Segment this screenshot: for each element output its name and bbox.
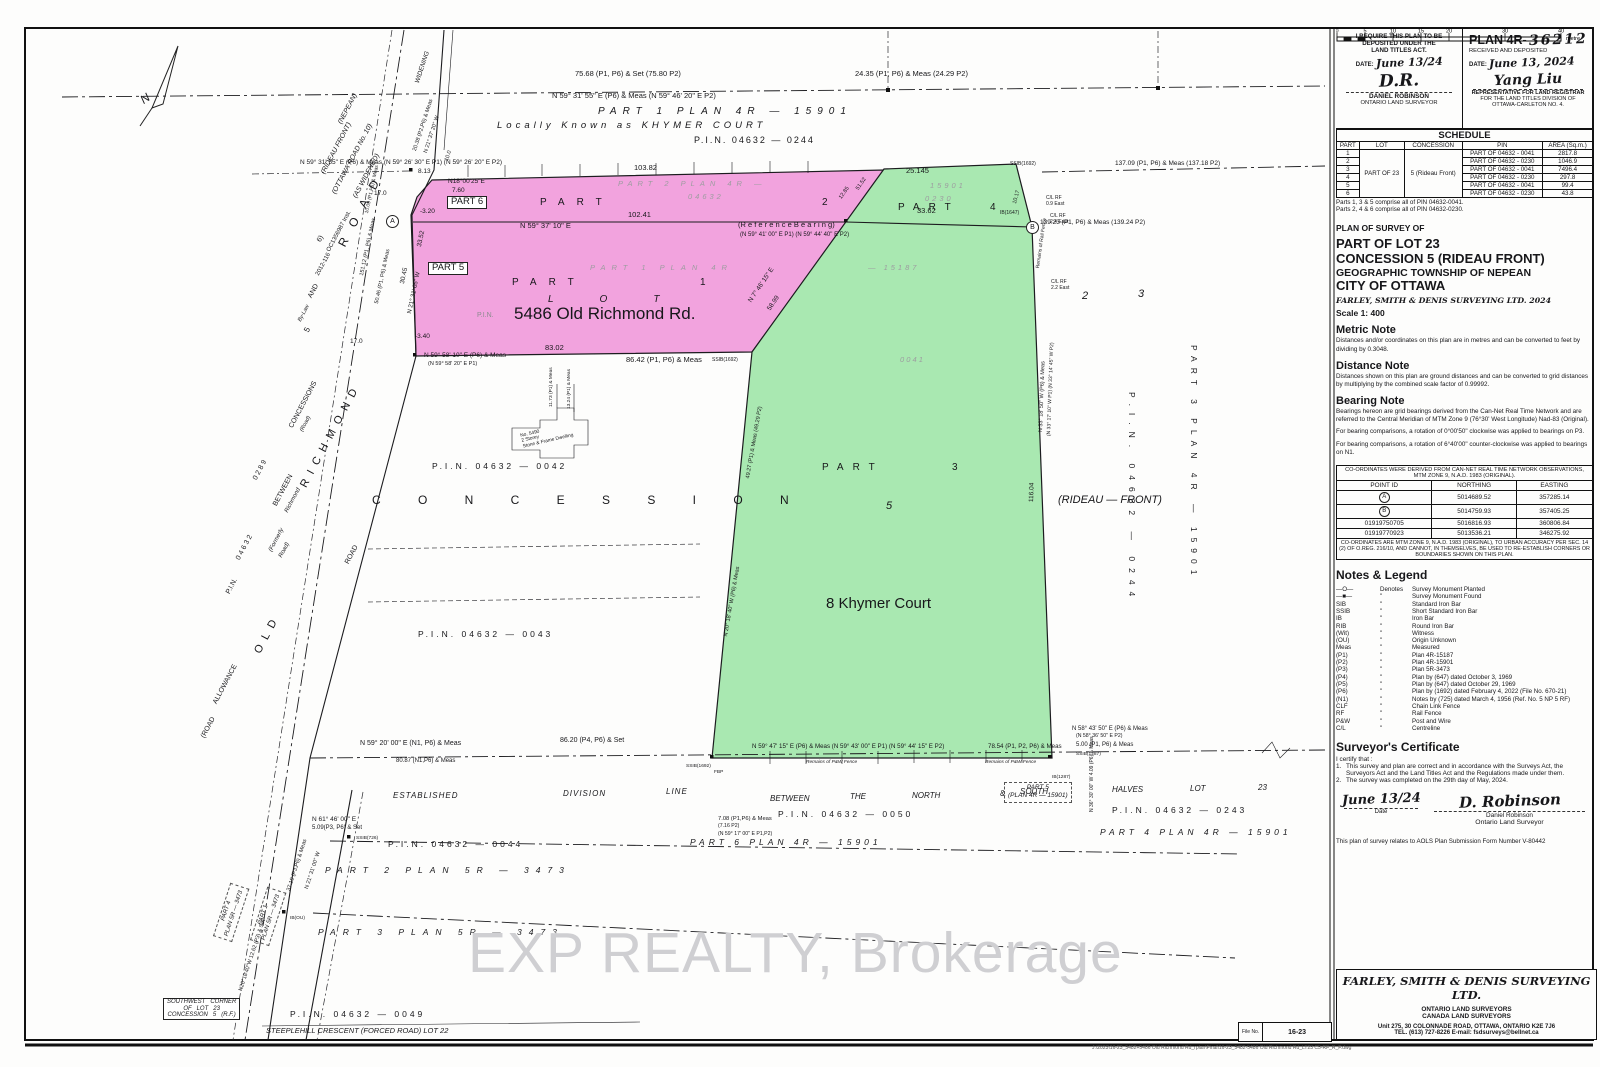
legend-list: —O—DenotesSurvey Monument Planted—■—"Sur… [1336, 586, 1593, 732]
map-label: 0230 [925, 195, 954, 203]
schedule-col-lot: LOT [1359, 142, 1404, 150]
survey-title-lot: PART OF LOT 23 [1336, 237, 1593, 252]
map-label: BETWEEN [770, 795, 810, 804]
svg-text:5: 5 [1363, 29, 1366, 35]
survey-firm-line: FARLEY, SMITH & DENIS SURVEYING LTD. 202… [1336, 296, 1593, 305]
map-label: PART 3 PLAN 4R — 15901 [1188, 345, 1198, 580]
map-label: IB(OU) [290, 916, 305, 921]
schedule-col-pin: PIN [1462, 142, 1543, 150]
map-label: 5.09(P3, P6) & Set [312, 825, 362, 832]
legend-item: CLF"Chain Link Fence [1336, 703, 1593, 710]
coords-row: 019197709235013536.21346275.92 [1337, 528, 1593, 538]
legend-item: (N1)"Notes by (725) dated March 4, 1956 … [1336, 696, 1593, 703]
map-label: 86.20 (P4, P6) & Set [560, 737, 624, 745]
schedule-col-area: AREA (Sq.m.) [1543, 142, 1593, 150]
survey-plan-sheet: N75.68 (P1, P6) & Set (75.80 P2)24.35 (P… [0, 0, 1600, 1067]
legend-item: SIB"Standard Iron Bar [1336, 601, 1593, 608]
map-label: PART 1 PLAN 4R [590, 264, 733, 272]
map-label: P.I.N. [477, 312, 494, 320]
title-block-panel: I REQUIRE THIS PLAN TO BE DEPOSITED UNDE… [1336, 28, 1593, 1040]
point-a: A [386, 215, 399, 228]
legend-item: (P6)"Plan by (1692) dated February 4, 20… [1336, 688, 1593, 695]
legend-item: IB"Iron Bar [1336, 615, 1593, 622]
map-label: THE [850, 793, 866, 802]
legend-item: (P5)"Plan by (647) dated October 29, 196… [1336, 681, 1593, 688]
certificate-title: Surveyor's Certificate [1336, 740, 1593, 754]
map-label: 116.04 [1028, 483, 1036, 503]
map-label: Remains of P&W Fence [806, 760, 857, 765]
coords-row: 019197507055016816.93360806.84 [1337, 518, 1593, 528]
point-b: B [1026, 221, 1039, 234]
map-label: PART 1 PLAN 4R — 15901 [598, 106, 852, 117]
map-label: 103.82 [634, 164, 657, 172]
svg-text:0: 0 [1336, 29, 1339, 35]
schedule-note1: Parts 1, 3 & 5 comprise all of PIN 04632… [1336, 199, 1593, 206]
schedule-row: 1PART OF 235 (Rideau Front)PART OF 04632… [1337, 150, 1593, 158]
legend-item: RF"Rail Fence [1336, 710, 1593, 717]
map-label: C/L RF 0.9 East [1046, 196, 1064, 207]
map-label: P.I.N. 04632 — 0244 [1126, 392, 1136, 603]
map-label: 102.41 [628, 211, 651, 219]
map-label: P.I.N. 04632 — 0043 [418, 630, 553, 640]
part5-label: PART 5 [428, 262, 468, 275]
steeplehill-label: STEEPLEHILL CRESCENT (FORCED ROAD) LOT 2… [266, 1027, 448, 1035]
map-label: (R e f e r e n c e B e a r i n g) [738, 221, 835, 229]
map-label: 8.13 [418, 168, 431, 175]
scale-label: Scale 1: 400 [1336, 308, 1593, 318]
map-label: C O N C E S S I O N [372, 494, 806, 507]
map-label: 7.08 (P1,P6) & Meas [718, 816, 772, 822]
registrar-date-value: June 13, 2024 [1489, 55, 1575, 71]
bearing-note-p3: For bearing comparisons, a rotation of 0… [1336, 428, 1593, 436]
map-label: IB(1647) [1000, 211, 1019, 217]
legend-item: (Wit)"Witness [1336, 630, 1593, 637]
map-label: 7.60 [452, 187, 465, 194]
legend-item: Meas"Measured [1336, 644, 1593, 651]
map-label: C/L RF 2.4 East [1050, 214, 1068, 225]
southwest-corner-note: SOUTHWEST CORNER OF LOT 23 CONCESSION 5 … [163, 998, 240, 1020]
file-number-label: File No. [1239, 1023, 1263, 1041]
scale-bar: 051015203040metres [1336, 28, 1580, 46]
bearing-note-body: Bearings hereon are grid bearings derive… [1336, 408, 1593, 424]
map-label: LINE [666, 788, 688, 797]
svg-text:15: 15 [1418, 29, 1424, 35]
certificate-surveyor-role: Ontario Land Surveyor [1426, 819, 1593, 826]
map-label: -3.20 [420, 208, 435, 215]
surveying-firm-box: FARLEY, SMITH & DENIS SURVEYING LTD. ONT… [1336, 969, 1597, 1040]
surveyor-name: DANIEL ROBINSON [1338, 93, 1460, 100]
map-label: P.I.N. 04632 — 0044 [388, 840, 523, 850]
map-label: N18°00'25"E [448, 178, 485, 185]
svg-text:20: 20 [1446, 29, 1452, 35]
legend-item: RIB"Round Iron Bar [1336, 623, 1593, 630]
map-label: Remains of P&W Fence [985, 760, 1036, 765]
part6-label: PART 6 [447, 196, 487, 209]
svg-text:40: 40 [1558, 29, 1564, 35]
schedule-title: SCHEDULE [1336, 129, 1593, 141]
map-label: 4 [990, 202, 996, 213]
map-label: N 58° 43' 50" E (P6) & Meas [1072, 726, 1148, 733]
deposit-date-value: June 13/24 [1375, 55, 1442, 70]
map-label: 33.62 [917, 207, 936, 215]
file-number-value: 16-23 [1263, 1029, 1331, 1036]
map-label: HALVES [1112, 786, 1143, 795]
khymer-court-label: Locally Known as KHYMER COURT [497, 121, 766, 132]
map-label: 80.87 (N1,P6) & Meas [396, 758, 455, 765]
map-label: PART [512, 277, 586, 288]
watermark: EXP REALTY, Brokerage [468, 922, 1123, 986]
map-label: PART 6 PLAN 4R — 15901 [690, 838, 882, 848]
survey-title-concession: CONCESSION 5 (RIDEAU FRONT) [1336, 252, 1593, 267]
firm-tel: TEL. (613) 727-8226 E-mail: fsdsurveys@b… [1339, 1030, 1594, 1036]
map-label: P.I.N. 04632 — 0244 [694, 135, 815, 145]
schedule-table: PART LOT CONCESSION PIN AREA (Sq.m.) 1PA… [1336, 141, 1593, 198]
survey-title-kicker: PLAN OF SURVEY OF [1336, 223, 1593, 233]
survey-title-city: CITY OF OTTAWA [1336, 279, 1593, 294]
bearing-note-n1: For bearing comparisons, a rotation of 6… [1336, 441, 1593, 457]
map-label: 11.73 (P1) & Meas [549, 367, 554, 407]
map-label: 78.54 (P1, P2, P6) & Meas [988, 744, 1062, 751]
certificate-date-value: June 13/24 [1341, 791, 1420, 809]
map-label: SSIB(1692) [686, 764, 711, 769]
map-label: C/L RF 2.2 East [1051, 280, 1069, 291]
legend-item: (OU)"Origin Unknown [1336, 637, 1593, 644]
map-label: IB(1287) [1052, 775, 1070, 780]
surveyor-signature: D.R. [1379, 70, 1420, 91]
map-label: (7.16 P2) [718, 824, 739, 830]
map-label: N 59° 20' 00" E (N1, P6) & Meas [360, 740, 461, 748]
map-label: P.I.N. 04632 — 0243 [1112, 806, 1247, 816]
map-label: PART [540, 197, 614, 208]
map-label: (RIDEAU — FRONT) [1058, 494, 1162, 506]
map-label: -3.40 [415, 333, 430, 340]
map-label: P.I.N. 04632 — 0049 [290, 1010, 425, 1020]
map-label: N 61° 46' 00" E [312, 816, 356, 823]
map-label: DIVISION [563, 790, 606, 799]
map-label: 0 0 4 1 [900, 356, 923, 364]
bearing-note-title: Bearing Note [1336, 395, 1593, 407]
legend-item: —O—DenotesSurvey Monument Planted [1336, 586, 1593, 593]
address-5486: 5486 Old Richmond Rd. [514, 304, 695, 323]
coords-row: B5014759.93357405.25 [1337, 504, 1593, 518]
address-8-khymer: 8 Khymer Court [826, 596, 931, 613]
map-label: SSIB(1692) [1010, 162, 1036, 168]
map-label: PART 2 PLAN 4R — [618, 180, 767, 188]
registrar-date-label: DATE: [1469, 62, 1487, 68]
map-label: 2 [822, 197, 828, 208]
distance-note-title: Distance Note [1336, 360, 1593, 372]
map-label: (N 59° 58' 20" E P1) [428, 361, 477, 367]
distance-note-body: Distances shown on this plan are ground … [1336, 373, 1593, 389]
north-arrow-icon [140, 46, 178, 126]
map-label: 5 [886, 500, 892, 512]
map-label: N 59° 47' 15" E (P6) & Meas (N 59° 43' 0… [752, 744, 944, 751]
map-label: 13.24 (P1) & Meas [567, 369, 572, 409]
map-label: 1 [700, 277, 706, 288]
received-deposited-label: RECEIVED AND DEPOSITED [1465, 48, 1591, 54]
map-label: 15901 [930, 182, 966, 190]
legend-item: (P4)"Plan by (647) dated October 3, 1969 [1336, 674, 1593, 681]
deposit-line3: LAND TITLES ACT. [1338, 47, 1460, 54]
map-label: 23 [1258, 784, 1267, 793]
coords-footer: CO-ORDINATES ARE MTM ZONE 9, N.A.D. 1983… [1337, 538, 1593, 559]
map-label: FBP [714, 770, 723, 775]
certificate-item1: This survey and plan are correct and in … [1346, 763, 1593, 777]
map-label: 75.68 (P1, P6) & Set (75.80 P2) [575, 70, 681, 78]
svg-text:10: 10 [1390, 29, 1396, 35]
map-label: N 59° 58' 10" E (P6) & Meas [424, 352, 506, 359]
registrar-role3: OTTAWA-CARLETON NO. 4. [1465, 102, 1591, 108]
map-label: 2 [1082, 290, 1088, 302]
deposit-date-label: DATE: [1356, 62, 1374, 68]
legend-item: —■—"Survey Monument Found [1336, 593, 1593, 600]
certificate-intro: I certify that : [1336, 756, 1593, 763]
map-label: NORTH [912, 792, 940, 801]
map-label: 04632 [688, 193, 724, 201]
map-label: 83.02 [545, 344, 564, 352]
dwg-path: J:\2023\16-23_5482+5486 Old Richmond Rd_… [1092, 1046, 1351, 1052]
coordinates-table: CO-ORDINATES WERE DERIVED FROM CAN-NET R… [1336, 465, 1593, 560]
surveyor-role: ONTARIO LAND SURVEYOR [1338, 100, 1460, 106]
map-label: N 36° 30' 00" W 4.09 (P6) & Meas [1090, 736, 1096, 812]
legend-item: (P3)"Plan 5R-3473 [1336, 666, 1593, 673]
map-label: LOT [1190, 785, 1206, 794]
map-label: 5.00 (P1, P6) & Meas [1076, 742, 1133, 749]
svg-text:metres: metres [1566, 36, 1580, 42]
legend-title: Notes & Legend [1336, 568, 1593, 582]
map-label: 25.145 [906, 167, 929, 175]
map-label: N 59° 37' 10" E [520, 222, 571, 230]
map-label: P.I.N. 04632 — 0042 [432, 462, 567, 472]
map-label: — 15187 [868, 264, 919, 272]
legend-item: (P1)"Plan 4R-15187 [1336, 652, 1593, 659]
map-label: 17.0 [350, 338, 363, 345]
certificate-item2: The survey was completed on the 29th day… [1346, 777, 1593, 784]
map-label: N 59° 31' 55" E (P6) & Meas (N 59° 46' 2… [552, 92, 716, 100]
registrar-signature: Yang Liu [1494, 71, 1563, 89]
map-label: PART 2 PLAN 5R — 3473 [325, 866, 571, 876]
metric-note-title: Metric Note [1336, 324, 1593, 336]
map-label: PART [822, 462, 884, 473]
legend-item: SSIB"Short Standard Iron Bar [1336, 608, 1593, 615]
map-label: 24.35 (P1, P6) & Meas (24.29 P2) [855, 70, 968, 78]
map-label: 3 [1138, 288, 1144, 300]
certificate-signature: D. Robinson [1458, 790, 1560, 812]
map-label: PART 5 (PLAN 4R — 15901) [1004, 782, 1072, 803]
schedule-col-part: PART [1337, 142, 1360, 150]
firm-sub2: CANADA LAND SURVEYORS [1339, 1013, 1594, 1020]
map-label: 17.0 [374, 190, 387, 197]
map-label: 86.42 (P1, P6) & Meas [626, 356, 702, 364]
map-label: 137.09 (P1, P6) & Meas (137.18 P2) [1115, 160, 1220, 167]
legend-item: (P2)"Plan 4R-15901 [1336, 659, 1593, 666]
map-label: ESTABLISHED [393, 792, 459, 801]
certificate-surveyor-name: Daniel Robinson [1426, 812, 1593, 819]
metric-note-body: Distances and/or coordinates on this pla… [1336, 337, 1593, 353]
map-label: SSIB(1692) [712, 358, 738, 364]
firm-sub1: ONTARIO LAND SURVEYORS [1339, 1006, 1594, 1013]
map-label: 3 [952, 462, 958, 473]
schedule-col-concession: CONCESSION [1404, 142, 1462, 150]
map-label: P.I.N. 04632 — 0050 [778, 810, 913, 820]
map-label: (N 59° 17' 00" E P1,P2) [718, 832, 772, 838]
file-number-box: File No. 16-23 [1238, 1022, 1332, 1042]
map-label: (N 59° 41' 00" E P1) (N 59° 44' 40" E P2… [740, 232, 849, 239]
aols-note: This plan of survey relates to AOLS Plan… [1336, 838, 1593, 845]
map-label: PART 4 PLAN 4R — 15901 [1100, 828, 1292, 838]
coords-row: A5014689.52357285.14 [1337, 490, 1593, 504]
firm-name: FARLEY, SMITH & DENIS SURVEYING LTD. [1339, 974, 1594, 1002]
schedule-note2: Parts 2, 4 & 6 comprise all of PIN 04632… [1336, 206, 1593, 213]
map-label: SSIB(726) [356, 836, 378, 841]
legend-item: P&W"Post and Wire [1336, 718, 1593, 725]
coords-header: CO-ORDINATES WERE DERIVED FROM CAN-NET R… [1337, 465, 1593, 480]
legend-item: C/L"Centreline [1336, 725, 1593, 732]
certificate-date-label: Date [1336, 809, 1426, 815]
svg-text:30: 30 [1502, 29, 1508, 35]
map-label: (N 58° 36' 50" E P2) [1076, 734, 1122, 740]
